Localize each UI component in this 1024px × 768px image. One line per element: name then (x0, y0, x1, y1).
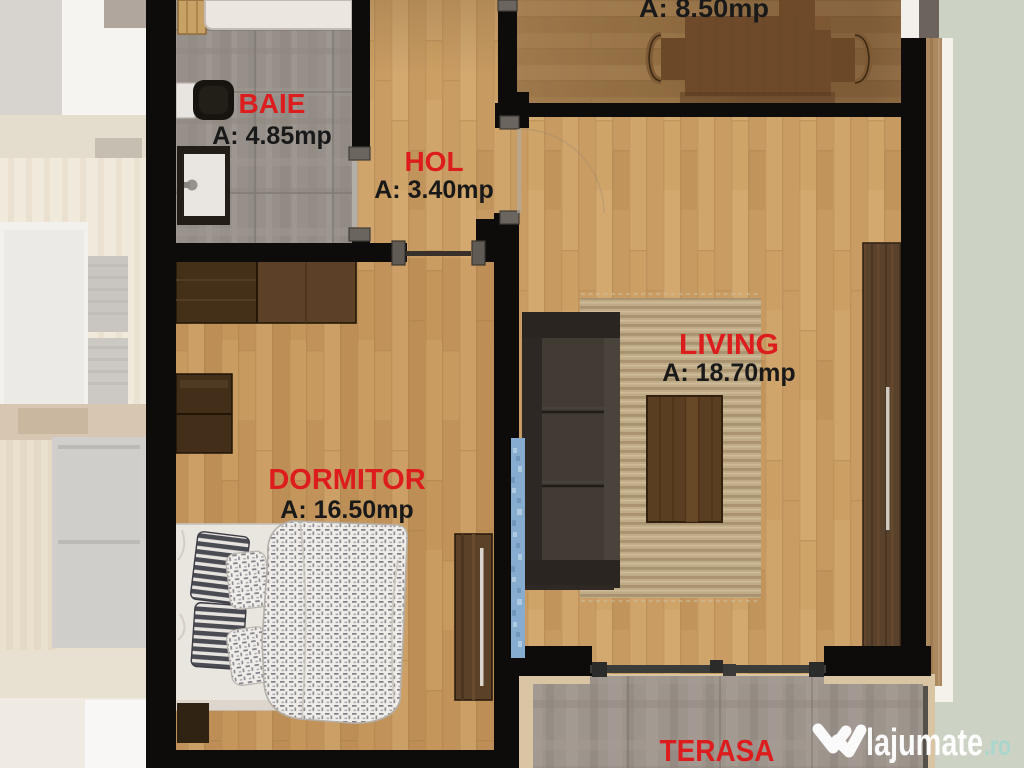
svg-text:.ro: .ro (984, 730, 1011, 761)
svg-text:LIVING: LIVING (679, 329, 779, 361)
svg-text:lajumate: lajumate (866, 722, 983, 764)
svg-text:TERASA: TERASA (660, 733, 775, 768)
svg-text:A: 8.50mp: A: 8.50mp (639, 0, 769, 23)
svg-text:HOL: HOL (404, 146, 463, 177)
svg-text:A: 16.50mp: A: 16.50mp (280, 496, 413, 524)
svg-text:A: 4.85mp: A: 4.85mp (212, 122, 331, 150)
svg-text:A: 18.70mp: A: 18.70mp (662, 359, 795, 387)
svg-text:BAIE: BAIE (239, 88, 306, 119)
svg-text:A: 3.40mp: A: 3.40mp (374, 176, 493, 204)
svg-text:DORMITOR: DORMITOR (268, 464, 425, 496)
